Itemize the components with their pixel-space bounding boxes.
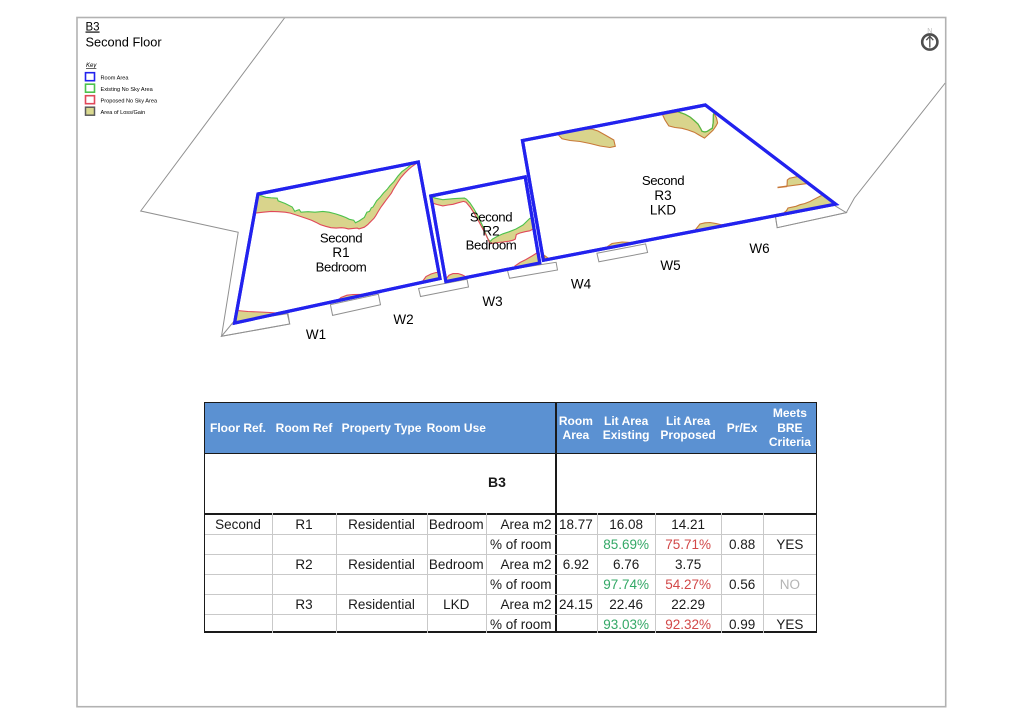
svg-text:Second: Second xyxy=(320,231,362,246)
svg-text:Second: Second xyxy=(642,173,684,188)
svg-text:W2: W2 xyxy=(393,312,413,327)
svg-text:B3: B3 xyxy=(86,22,100,34)
svg-text:W5: W5 xyxy=(660,258,680,273)
svg-text:Proposed No Sky Area: Proposed No Sky Area xyxy=(101,99,158,105)
svg-text:Key: Key xyxy=(86,63,97,69)
svg-text:Bedroom: Bedroom xyxy=(466,238,517,253)
svg-text:R2: R2 xyxy=(482,224,499,239)
svg-text:Second Floor: Second Floor xyxy=(86,35,163,50)
svg-text:Existing No Sky Area: Existing No Sky Area xyxy=(101,87,154,93)
svg-text:LKD: LKD xyxy=(650,203,677,218)
svg-text:Room Area: Room Area xyxy=(101,76,130,82)
svg-text:W1: W1 xyxy=(306,327,326,342)
svg-text:R3: R3 xyxy=(654,188,671,203)
svg-text:Area of Loss/Gain: Area of Loss/Gain xyxy=(101,110,146,116)
svg-text:Bedroom: Bedroom xyxy=(316,260,367,275)
svg-text:W4: W4 xyxy=(571,277,592,292)
svg-text:W6: W6 xyxy=(749,241,769,256)
svg-text:W3: W3 xyxy=(482,294,502,309)
svg-text:Second: Second xyxy=(470,210,512,225)
svg-text:R1: R1 xyxy=(332,245,349,260)
